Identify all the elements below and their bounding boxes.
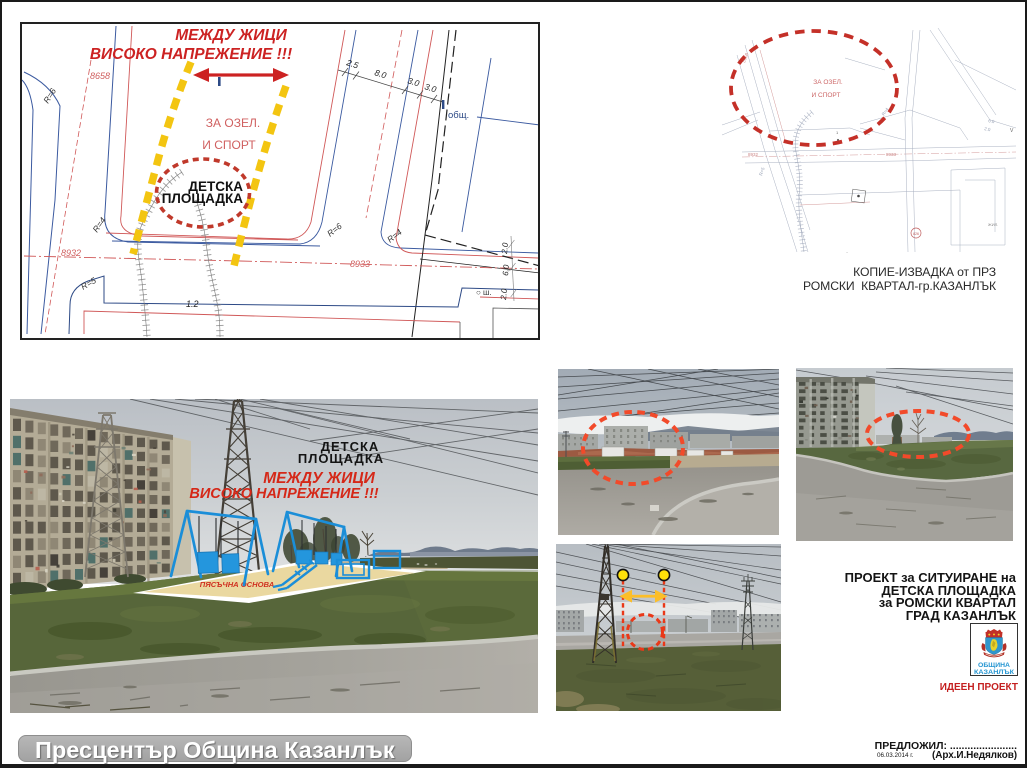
svg-text:6.0: 6.0 — [501, 264, 511, 276]
svg-text:ОБЩИНА: ОБЩИНА — [978, 662, 1010, 669]
svg-text:общ.: общ. — [448, 110, 469, 121]
svg-text:ПЯСЪЧНА ОСНОВА: ПЯСЪЧНА ОСНОВА — [200, 580, 275, 589]
svg-text:1: 1 — [836, 130, 839, 135]
svg-text:8933: 8933 — [886, 152, 897, 157]
svg-text:И СПОРТ: И СПОРТ — [202, 138, 256, 152]
svg-text:МЕЖДУ ЖИЦИ: МЕЖДУ ЖИЦИ — [263, 470, 375, 487]
svg-text:8933: 8933 — [350, 259, 370, 269]
svg-text:2.5: 2.5 — [344, 57, 359, 70]
svg-text:МЕЖДУ ЖИЦИ: МЕЖДУ ЖИЦИ — [175, 27, 287, 44]
svg-text:ВИСОКО НАПРЕЖЕНИЕ !!!: ВИСОКО НАПРЕЖЕНИЕ !!! — [189, 486, 378, 502]
svg-text:R=4: R=4 — [385, 227, 404, 245]
svg-text:ВИСОКО НАПРЕЖЕНИЕ !!!: ВИСОКО НАПРЕЖЕНИЕ !!! — [90, 46, 292, 63]
svg-text:8658: 8658 — [90, 71, 110, 81]
svg-text:R=6: R=6 — [325, 221, 344, 239]
svg-text:R=5: R=5 — [79, 275, 98, 292]
svg-text:ЗА ОЗЕЛ.: ЗА ОЗЕЛ. — [813, 79, 843, 86]
svg-text:3.0: 3.0 — [406, 75, 420, 88]
svg-text:ЗА ОЗЕЛ.: ЗА ОЗЕЛ. — [206, 116, 260, 130]
svg-text:○ ш.: ○ ш. — [476, 288, 492, 297]
svg-text:826: 826 — [913, 232, 919, 236]
svg-text:ПЛОЩАДКА: ПЛОЩАДКА — [162, 191, 244, 206]
svg-text:КАЗАНЛЪК: КАЗАНЛЪК — [974, 669, 1015, 675]
svg-text:8932: 8932 — [61, 248, 81, 258]
svg-text:2.0: 2.0 — [984, 126, 992, 132]
svg-text:1: 1 — [846, 251, 849, 253]
svg-text:V: V — [1010, 128, 1014, 134]
svg-text:2.0: 2.0 — [500, 242, 510, 255]
svg-text:ЖИЛ.: ЖИЛ. — [988, 222, 998, 227]
svg-text:R=5: R=5 — [758, 166, 765, 176]
svg-text:8932: 8932 — [748, 152, 759, 157]
svg-text:ПЛОЩАДКА: ПЛОЩАДКА — [298, 451, 384, 466]
svg-text:2.0: 2.0 — [499, 288, 509, 301]
svg-text:6.0: 6.0 — [988, 118, 996, 124]
svg-text:R=6: R=6 — [41, 86, 58, 105]
svg-text:8.0: 8.0 — [373, 67, 387, 80]
svg-text:3.0: 3.0 — [423, 81, 437, 94]
svg-text:R=4: R=4 — [90, 215, 107, 234]
svg-text:1.2: 1.2 — [186, 299, 199, 309]
svg-text:И СПОРТ: И СПОРТ — [812, 92, 841, 99]
